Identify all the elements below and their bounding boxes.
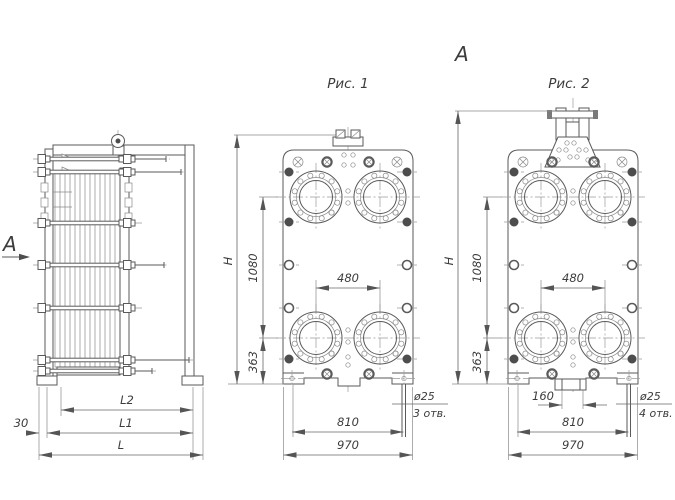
rod-washer bbox=[46, 305, 51, 311]
rod-nut bbox=[38, 367, 46, 376]
guide-tab bbox=[41, 183, 48, 192]
rod-nut bbox=[124, 367, 132, 376]
rod-washer bbox=[46, 169, 51, 175]
dim-970-label: 970 bbox=[562, 438, 584, 452]
lifting-eye bbox=[112, 130, 125, 158]
side-view: А bbox=[1, 130, 203, 460]
dim-480-label: 480 bbox=[562, 271, 584, 285]
rod-washer bbox=[119, 220, 124, 226]
hole-count-label: 4 отв. bbox=[639, 407, 673, 420]
rod-washer bbox=[46, 357, 51, 363]
lug-stud bbox=[336, 130, 345, 138]
dim-970-label: 970 bbox=[337, 438, 359, 452]
rod-nut bbox=[38, 304, 46, 313]
fig1-title: Рис. 1 bbox=[327, 76, 369, 92]
dim-363-label: 363 bbox=[246, 351, 260, 373]
fig1-view: Рис. 1 bbox=[221, 76, 448, 460]
fig2-view-a-letter: А bbox=[453, 42, 469, 66]
tie-rod bbox=[33, 155, 170, 164]
rod-washer bbox=[131, 357, 135, 363]
rod-nut bbox=[38, 356, 46, 365]
rod-body bbox=[50, 306, 119, 310]
rod-body bbox=[50, 170, 119, 174]
rod-nut bbox=[124, 356, 132, 365]
rod-body bbox=[50, 358, 119, 362]
rod-nut bbox=[38, 261, 46, 270]
fig2-center-foot bbox=[555, 379, 586, 390]
support-column bbox=[185, 145, 194, 376]
side-machine bbox=[33, 130, 203, 385]
guide-tab bbox=[125, 183, 132, 192]
rod-nut bbox=[124, 168, 132, 177]
fig2-title: Рис. 2 bbox=[548, 76, 590, 92]
fig2-view: А Рис. 2 bbox=[442, 42, 673, 460]
dim-l2-label: L2 bbox=[120, 393, 134, 407]
dim-810-label: 810 bbox=[562, 415, 584, 429]
dim-30-label: 30 bbox=[14, 416, 29, 430]
rod-washer bbox=[131, 156, 135, 162]
rod-body bbox=[50, 369, 119, 373]
rod-washer bbox=[119, 169, 124, 175]
dim-1080-label: 1080 bbox=[470, 253, 484, 282]
drawing-canvas: А bbox=[0, 0, 675, 500]
rod-body bbox=[50, 263, 119, 267]
right-foot bbox=[182, 376, 203, 385]
rod-nut bbox=[124, 155, 132, 164]
hole-diameter-label: ø25 bbox=[413, 390, 435, 403]
rod-washer bbox=[46, 368, 51, 374]
side-view-marker: А bbox=[1, 232, 30, 260]
rod-washer bbox=[46, 156, 51, 162]
rod-washer bbox=[131, 262, 135, 268]
rod-washer bbox=[131, 368, 135, 374]
rod-washer bbox=[131, 169, 135, 175]
dim-h-label: H bbox=[442, 256, 456, 265]
rod-nut bbox=[124, 261, 132, 270]
rod-washer bbox=[46, 262, 51, 268]
dim-810-label: 810 bbox=[337, 415, 359, 429]
technical-drawing: А bbox=[0, 0, 675, 500]
rod-washer bbox=[119, 156, 124, 162]
rod-nut bbox=[124, 219, 132, 228]
fig1-hole-callout: ø25 3 отв. bbox=[392, 390, 448, 420]
rod-nut bbox=[124, 304, 132, 313]
rod-washer bbox=[119, 357, 124, 363]
dim-1080-label: 1080 bbox=[246, 253, 260, 282]
left-foot bbox=[37, 376, 57, 385]
rod-nut bbox=[38, 168, 46, 177]
fig2-hole-callout: ø25 4 отв. bbox=[616, 390, 673, 420]
guide-tab bbox=[41, 198, 48, 207]
rod-nut bbox=[38, 219, 46, 228]
rod-washer bbox=[131, 305, 135, 311]
fig2-plate bbox=[506, 98, 640, 392]
side-dimensions: L2 30 L1 L bbox=[14, 387, 203, 460]
pin-end bbox=[593, 110, 598, 119]
dim-l-label: L bbox=[118, 438, 124, 452]
hole-diameter-label: ø25 bbox=[639, 390, 661, 403]
dim-l1-label: L1 bbox=[119, 416, 133, 430]
lug-stud bbox=[351, 130, 360, 138]
rod-washer bbox=[119, 368, 124, 374]
dim-160-label: 160 bbox=[532, 389, 554, 403]
dim-363-label: 363 bbox=[470, 351, 484, 373]
rod-washer bbox=[131, 220, 135, 226]
rod-body bbox=[50, 221, 119, 225]
view-direction-arrow-icon bbox=[19, 254, 30, 260]
view-a-letter: А bbox=[1, 232, 17, 256]
dim-h-label: H bbox=[221, 256, 235, 265]
hole-count-label: 3 отв. bbox=[413, 407, 447, 420]
rod-body bbox=[50, 157, 119, 161]
rod-washer bbox=[119, 262, 124, 268]
rod-washer bbox=[46, 220, 51, 226]
rod-nut bbox=[38, 155, 46, 164]
dim-480-label: 480 bbox=[337, 271, 359, 285]
guide-tab bbox=[125, 198, 132, 207]
rod-washer bbox=[119, 305, 124, 311]
